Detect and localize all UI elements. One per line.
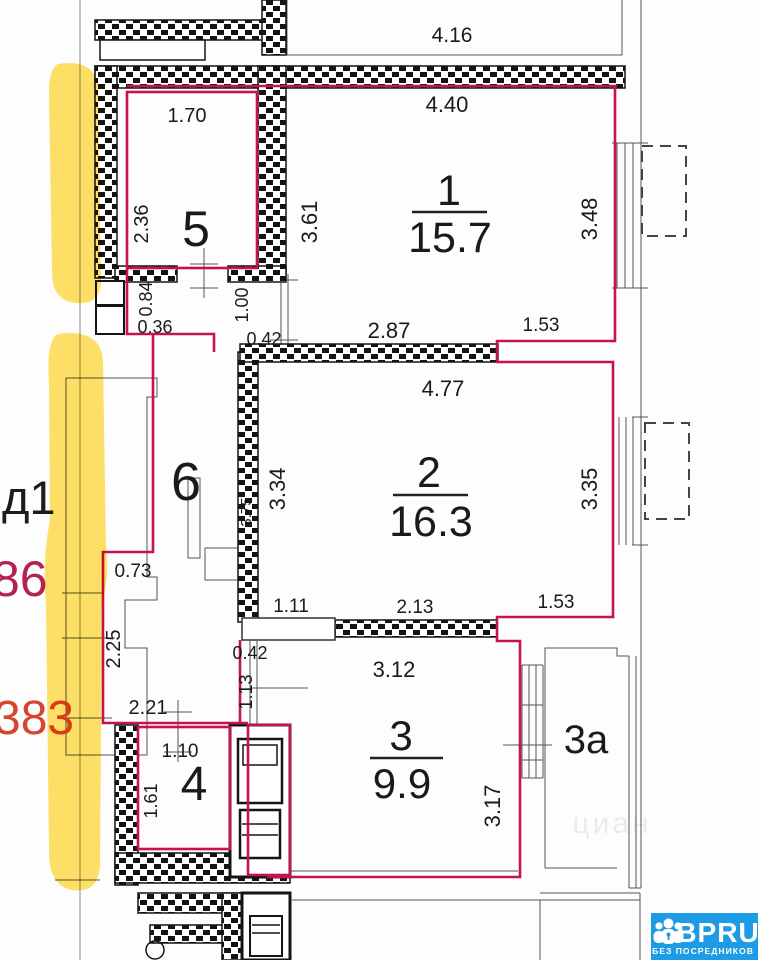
room-1-number: 1 <box>437 167 461 215</box>
dim-1-13: 1.13 <box>236 674 256 709</box>
dim-1-53-b: 1.53 <box>538 592 575 613</box>
room-1-area: 15.7 <box>408 214 492 262</box>
dim-1-61: 1.61 <box>141 783 161 818</box>
dim-0-73: 0.73 <box>115 561 152 582</box>
dim-3-12: 3.12 <box>373 657 416 682</box>
dim-3-61: 3.61 <box>297 201 322 244</box>
dim-1-53-a: 1.53 <box>523 315 560 336</box>
room-6-number: 6 <box>171 452 201 512</box>
dim-3-35: 3.35 <box>577 468 602 511</box>
dim-4-40: 4.40 <box>426 92 469 117</box>
entrance-note: д1 <box>2 471 56 524</box>
floor-plan-screenshot: циан 5 1 15.7 6 2 16.3 3 9.9 4 3а 4.16 4… <box>0 0 758 960</box>
room-5-number: 5 <box>182 201 210 257</box>
room-2-number: 2 <box>417 449 441 497</box>
dim-0-36: 0.36 <box>137 317 172 337</box>
dim-2-25: 2.25 <box>103 630 125 669</box>
dim-0-42-a: 0.42 <box>246 329 281 349</box>
dim-3-17: 3.17 <box>480 785 505 828</box>
dim-2-13: 2.13 <box>397 597 434 618</box>
yellow-highlight-marks <box>45 63 108 890</box>
room-3-number: 3 <box>389 712 412 759</box>
dim-3-48: 3.48 <box>577 198 602 241</box>
dim-1-10: 1.10 <box>162 741 199 762</box>
dim-1-70: 1.70 <box>168 105 207 127</box>
dim-0-42-b: 0.42 <box>232 643 267 663</box>
wall-room5-room1 <box>258 66 286 274</box>
wall-room2-room3 <box>335 620 497 637</box>
dim-3-34: 3.34 <box>265 468 290 511</box>
dim-2-21: 2.21 <box>129 697 168 719</box>
site-watermark: циан <box>572 807 651 840</box>
window-room2 <box>619 417 648 545</box>
dim-0-84: 0.84 <box>136 281 156 316</box>
loggia-3a-outline <box>545 648 641 888</box>
dim-1-00: 1.00 <box>232 287 252 322</box>
room-3a-number: 3а <box>564 718 609 762</box>
dim-4-77: 4.77 <box>422 376 465 401</box>
room-4-number: 4 <box>181 758 208 811</box>
balcony-dashed <box>642 146 689 519</box>
wall-corridor-room2 <box>238 352 258 622</box>
dim-1-11: 1.11 <box>273 596 309 617</box>
dim-4-16: 4.16 <box>432 24 473 47</box>
bpru-tagline-text: БЕЗ ПОСРЕДНИКОВ <box>652 946 754 956</box>
dim-2-87: 2.87 <box>368 318 411 343</box>
dim-3-75: 3.75 <box>238 497 255 526</box>
room-3-area: 9.9 <box>373 760 431 807</box>
floor-plan-svg: циан 5 1 15.7 6 2 16.3 3 9.9 4 3а 4.16 4… <box>0 0 758 960</box>
dim-2-36: 2.36 <box>131 205 153 244</box>
bpru-brand-text: BPRU <box>676 917 758 948</box>
note-86: 86 <box>0 551 48 607</box>
room-2-area: 16.3 <box>389 498 473 546</box>
bpru-badge: BPRU БЕЗ ПОСРЕДНИКОВ <box>651 913 758 960</box>
